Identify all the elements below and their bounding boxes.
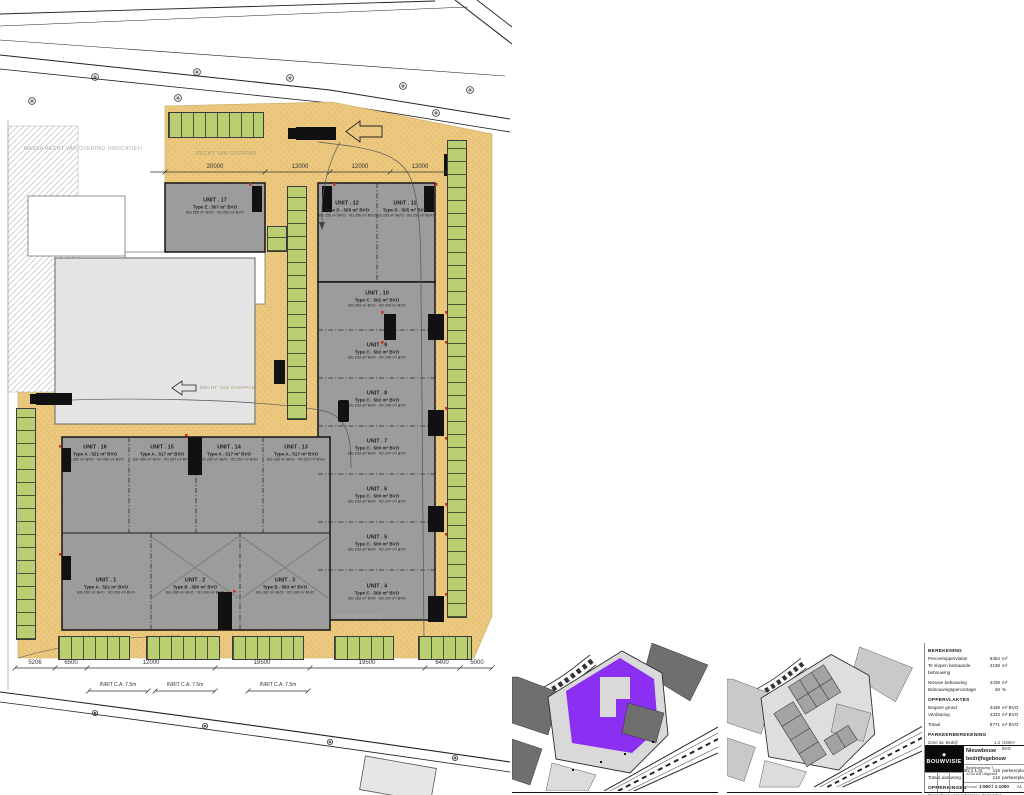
unit-label-7: UNIT . 7Type C . 500 m² BVO BG 253 m² BV… xyxy=(348,438,406,455)
unit-label-16: UNIT . 16Type A . 521 m² BVO BG 262 m² B… xyxy=(66,444,124,461)
unit-label-5: UNIT . 5Type C . 500 m² BVO BG 253 m² BV… xyxy=(348,534,406,551)
dim-bottom-2: 6500 xyxy=(64,660,77,666)
sheet-format: A1 xyxy=(1017,784,1022,790)
unit-label-10: UNIT . 10Type C . 502 m² BVO BG 253 m² B… xyxy=(348,290,406,307)
watermark: www.bouwvisie.nl xyxy=(336,613,382,619)
unit-label-15: UNIT . 15Type A . 517 m² BVO BG 260 m² B… xyxy=(133,444,191,461)
company-logo: ◆ BOUWVISIE xyxy=(925,746,963,772)
neighbour-building xyxy=(512,739,542,785)
scale-row: Schaal 1:500 / 1:1000 A1 xyxy=(964,782,1024,792)
unit-label-13: UNIT . 13Type A . 517 m² BVO BG 260 m² B… xyxy=(267,444,325,461)
inset-cadastral-map xyxy=(727,643,922,793)
parking-row-bottom-1 xyxy=(58,636,130,660)
inset-cadastral-svg xyxy=(727,643,922,791)
unit-label-6: UNIT . 6Type C . 500 m² BVO BG 253 m² BV… xyxy=(348,486,406,503)
parking-row-bottom-4 xyxy=(334,636,394,660)
truck-mid xyxy=(274,360,285,384)
inrit-label-1: INRIT C.A. 7.5m xyxy=(100,682,137,688)
dim-top-1: 20000 xyxy=(207,164,224,170)
logo-text: BOUWVISIE xyxy=(926,759,961,765)
scale-label: Schaal xyxy=(966,785,977,790)
unit-label-14: UNIT . 14Type A . 517 m² BVO BG 260 m² B… xyxy=(200,444,258,461)
tb-row: Bebouwingspercentage 48 % xyxy=(928,687,1022,694)
massa-overpad-note: MASSA RECHT VAN OVERPAD (INDICATIEF) xyxy=(24,146,143,152)
inset-location-map xyxy=(512,643,718,793)
drawing-sheet: UNIT . 1 Type A . 521 m² BVO BG 262 m² B… xyxy=(0,0,1024,795)
unit-label-4: UNIT . 4Type C . 500 m² BVO BG 253 m² BV… xyxy=(348,583,406,600)
dim-bottom-1: 5206 xyxy=(28,660,41,666)
neighbour-building xyxy=(727,738,755,782)
parkeer-heading: PARKEERBEREKENING xyxy=(928,732,1022,739)
massa-overpad-left: MASSA RECHT VAN OVERPAD xyxy=(17,473,22,603)
tb-row: Nieuwe bebouwing 4439 m² xyxy=(928,680,1022,687)
parking-row-bottom-5 xyxy=(418,636,472,660)
parking-row-top xyxy=(168,112,264,138)
tb-row: Totaal 8771 m² BVO xyxy=(928,722,1022,729)
dim-top-3: 12000 xyxy=(352,164,369,170)
existing-outline-building xyxy=(28,196,125,256)
neighbour-building-light xyxy=(759,761,806,788)
parking-pair-mid xyxy=(267,226,287,252)
title-block: BEREKENING Perceeloppervlakte 9354 m² Te… xyxy=(924,643,1024,793)
truck-left xyxy=(36,393,72,405)
unit-number: UNIT . 1 xyxy=(77,577,135,584)
unit-label-11: UNIT . 11Type D . 505 m² BVO BG 255 m² B… xyxy=(376,200,434,217)
tb-row: Begane grond 4439 m² BVO xyxy=(928,705,1022,712)
stamp-mini-cells xyxy=(925,772,963,792)
parking-row-bottom-2 xyxy=(146,636,220,660)
building-unit-17 xyxy=(165,183,265,252)
dim-top-4: 12000 xyxy=(412,164,429,170)
building-units-12-11 xyxy=(318,183,435,282)
dim-bottom-6: 6400 xyxy=(435,660,448,666)
unit-label-3: UNIT . 3Type B . 583 m² BVO BG 392 m² BV… xyxy=(256,577,314,594)
unit-vd: VD 260 m² BVO xyxy=(108,590,135,595)
scale-value: 1:500 / 1:1000 xyxy=(979,784,1009,791)
inset-location-svg xyxy=(512,643,718,791)
unit-bg: BG 262 m² BVO xyxy=(77,590,104,595)
unit-label-12: UNIT . 12Type D . 505 m² BVO BG 255 m² B… xyxy=(318,200,376,217)
tb-row: Perceeloppervlakte 9354 m² xyxy=(928,656,1022,663)
unit-label-8: UNIT . 8Type C . 502 m² BVO BG 253 m² BV… xyxy=(348,390,406,407)
project-address-2: 1234 AB Uitgeest xyxy=(964,771,1024,777)
road-bottom-lines xyxy=(0,692,510,772)
parking-column-mid xyxy=(287,186,307,420)
neighbour-building-bottom xyxy=(360,756,437,795)
unit-label-2: UNIT . 2Type B . 580 m² BVO BG 390 m² BV… xyxy=(166,577,224,594)
truck-top xyxy=(296,127,336,140)
dim-top-2: 12000 xyxy=(292,164,309,170)
dim-bottom-5: 19500 xyxy=(359,660,376,666)
dim-bottom-7: 5000 xyxy=(470,660,483,666)
tb-row: Te slopen bestaande bebouwing 4138 m² xyxy=(928,663,1022,677)
project-title: Nieuwbouw bedrijfsgebouw xyxy=(964,746,1024,765)
parking-column-right xyxy=(447,140,467,618)
tree-symbols-bottom xyxy=(92,710,457,760)
stamp: ◆ BOUWVISIE Nieuwbouw bedrijfsgebouw Bed… xyxy=(925,745,1024,792)
unit-label-17: UNIT . 17Type E . 507 m² BVO BG 255 m² B… xyxy=(186,197,244,214)
tb-row: Verdieping 4333 m² BVO xyxy=(928,712,1022,719)
recht-van-overpad-top: RECHT VAN OVERPAD xyxy=(196,151,257,157)
berekening-heading: BEREKENING xyxy=(928,648,1022,655)
recht-van-overpad-mid: RECHT VAN OVERPAD xyxy=(200,385,255,390)
dim-bottom-3: 12000 xyxy=(143,660,160,666)
parking-row-bottom-3 xyxy=(232,636,304,660)
unit-label-9: UNIT . 9Type C . 502 m² BVO BG 253 m² BV… xyxy=(348,342,406,359)
neighbour-building-light xyxy=(546,763,596,791)
inrit-label-3: INRIT C.A. 7.5m xyxy=(260,682,297,688)
dim-bottom-4: 19500 xyxy=(254,660,271,666)
inrit-label-2: INRIT C.A. 7.5m xyxy=(167,682,204,688)
unit-label-1: UNIT . 1 Type A . 521 m² BVO BG 262 m² B… xyxy=(77,577,135,594)
oppervlaktes-heading: OPPERVLAKTES xyxy=(928,697,1022,704)
